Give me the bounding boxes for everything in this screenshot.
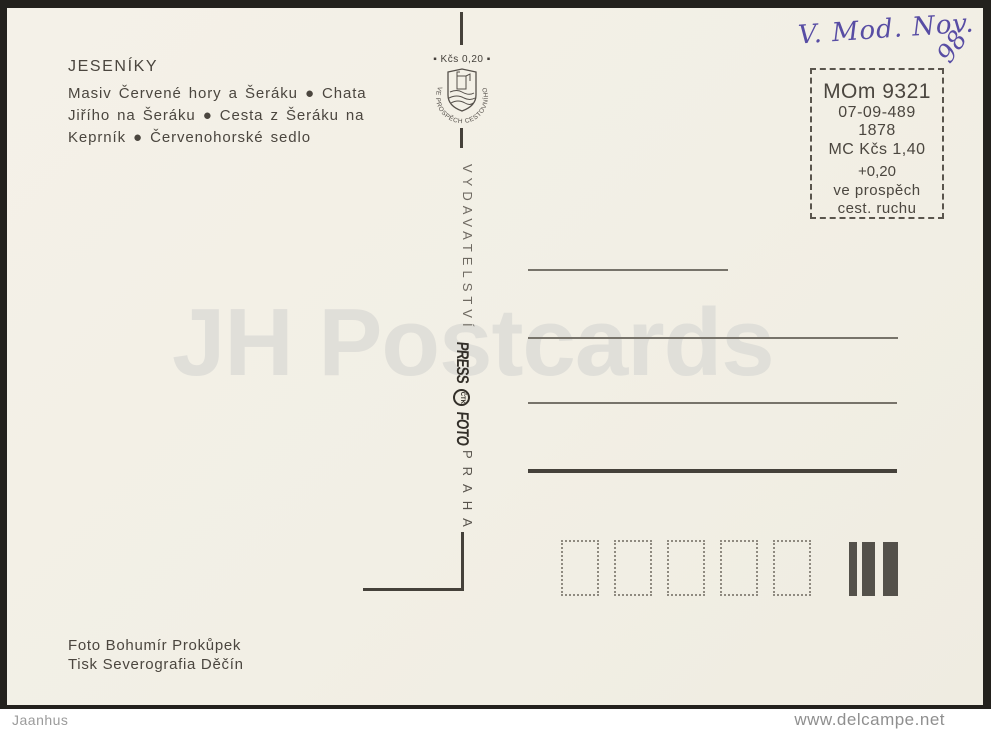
info-box-line: MC Kčs 1,40 [828,140,925,160]
address-line [528,402,897,404]
city-vertical-text: PRAHA [449,450,475,530]
tourism-stamp-emblem: ▪ Kčs 0,20 ▪ VE PROSPĚCH CESTOVNÍHO RUCH… [424,48,500,132]
stamp-shield-icon [448,69,476,111]
ctk-badge-icon: ČTK [454,389,471,406]
print-credit: Tisk Severografia Děčín [68,655,244,674]
sorting-bar [883,542,898,596]
info-box-line: cest. ruchu [838,200,917,218]
photo-credit: Foto Bohumír Prokůpek [68,636,244,655]
info-box-line: 1878 [858,122,896,140]
info-box-line: MOm 9321 [823,80,931,104]
info-box-line: +0,20 [858,162,896,182]
stamp-value-text: ▪ Kčs 0,20 ▪ [433,54,491,65]
info-box-line: ve prospěch [833,182,920,200]
postal-code-box [614,540,652,596]
pressfoto-press-text: PRESS [452,341,472,384]
seller-name: Jaanhus [12,712,68,728]
info-box-line: 07-09-489 [838,104,915,122]
pressfoto-logo: PRESS ČTK FOTO [451,337,473,449]
postcard-content: JH Postcards JESENÍKY Masiv Červené hory… [0,0,991,709]
postcard-title: JESENÍKY [68,58,398,76]
postal-code-row [561,540,811,596]
postal-code-box [720,540,758,596]
sorting-bar [862,542,875,596]
divider-segment-horizontal [363,588,464,591]
address-line [528,337,898,339]
seller-watermark: JH Postcards [172,288,812,398]
caption-line: Keprník ● Červenohorské sedlo [68,127,398,149]
publisher-vertical-text: VYDAVATELSTVÍ [449,155,475,341]
address-line-bold [528,469,897,473]
credits-block: Foto Bohumír Prokůpek Tisk Severografia … [68,636,244,674]
address-line [528,269,728,271]
sorting-bars [849,542,899,596]
postal-code-box [773,540,811,596]
caption-line: Jiřího na Šeráku ● Cesta z Šeráku na [68,105,398,127]
caption-line: Masiv Červené hory a Šeráku ● Chata [68,83,398,105]
divider-segment-top [460,12,463,45]
pressfoto-foto-text: FOTO [452,411,472,446]
divider-segment-bottom [461,532,464,591]
marketplace-url[interactable]: www.delcampe.net [794,710,945,730]
sorting-bar [849,542,857,596]
postal-code-box [667,540,705,596]
postal-code-box [561,540,599,596]
caption-block: JESENÍKY Masiv Červené hory a Šeráku ● C… [68,58,398,149]
postage-info-box: MOm 9321 07-09-489 1878 MC Kčs 1,40 +0,2… [810,68,944,219]
